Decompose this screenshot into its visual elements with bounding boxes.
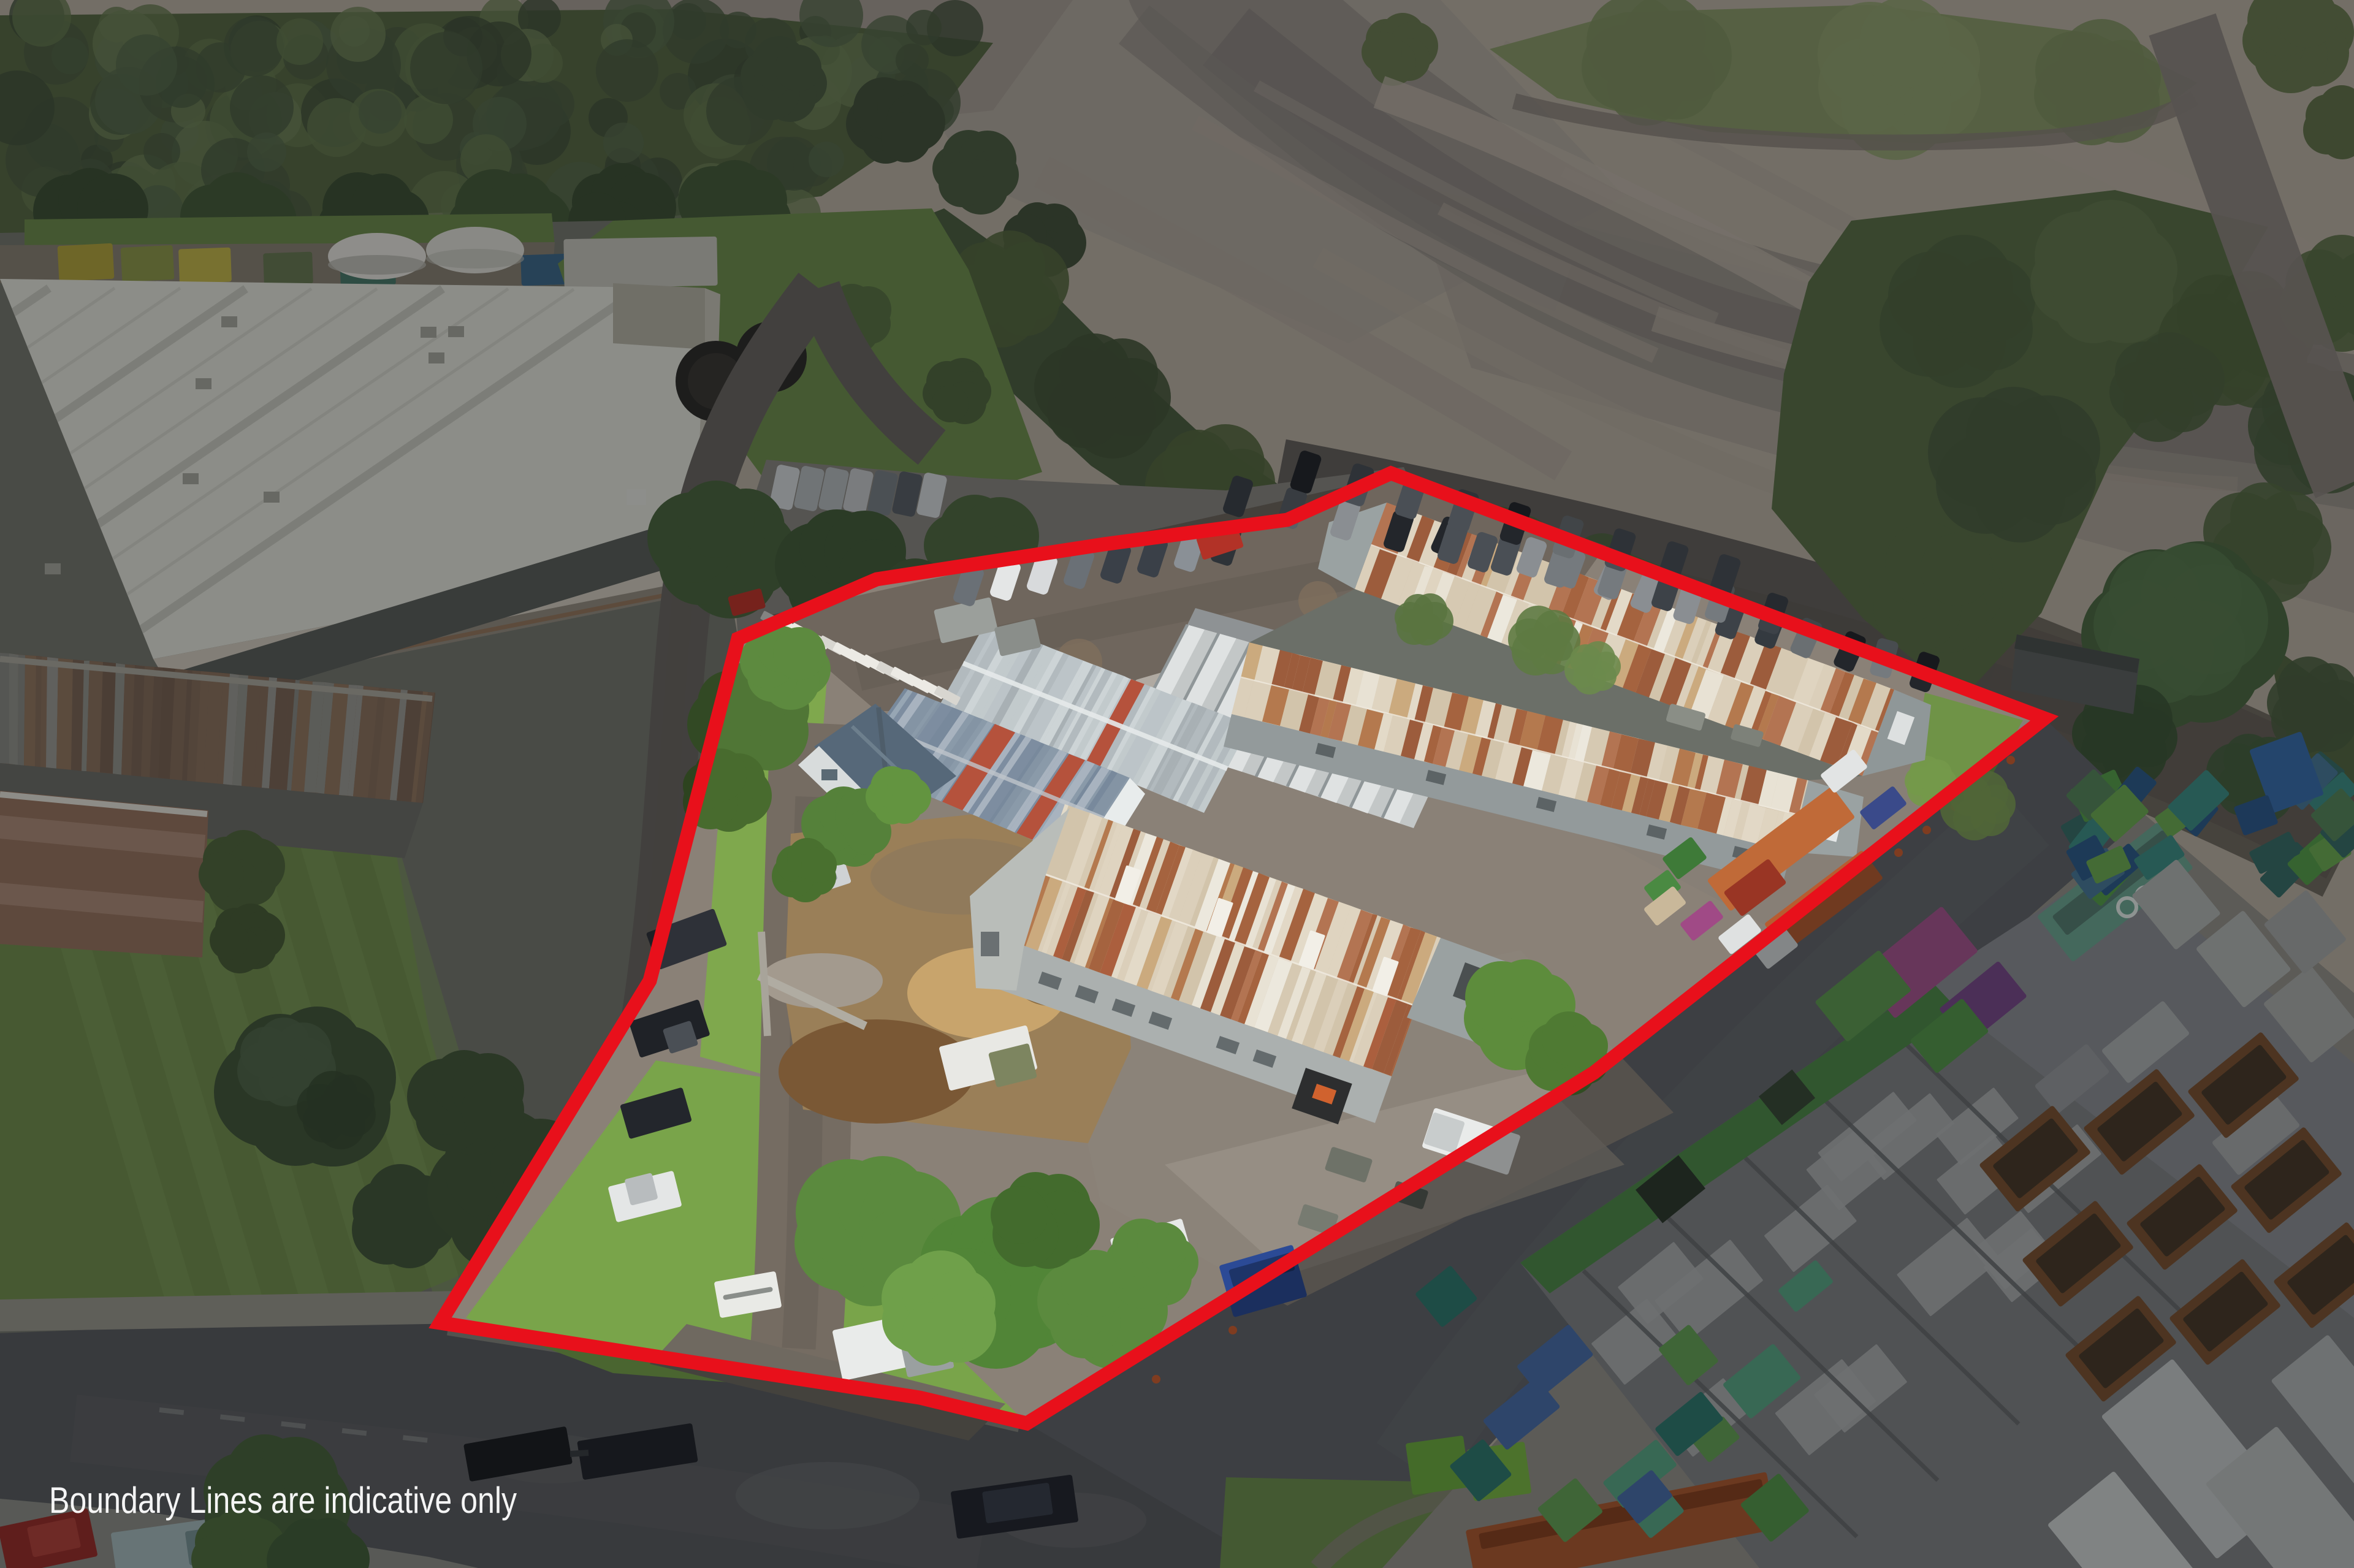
svg-text:Boundary Lines are indicative: Boundary Lines are indicative only: [49, 1480, 517, 1521]
